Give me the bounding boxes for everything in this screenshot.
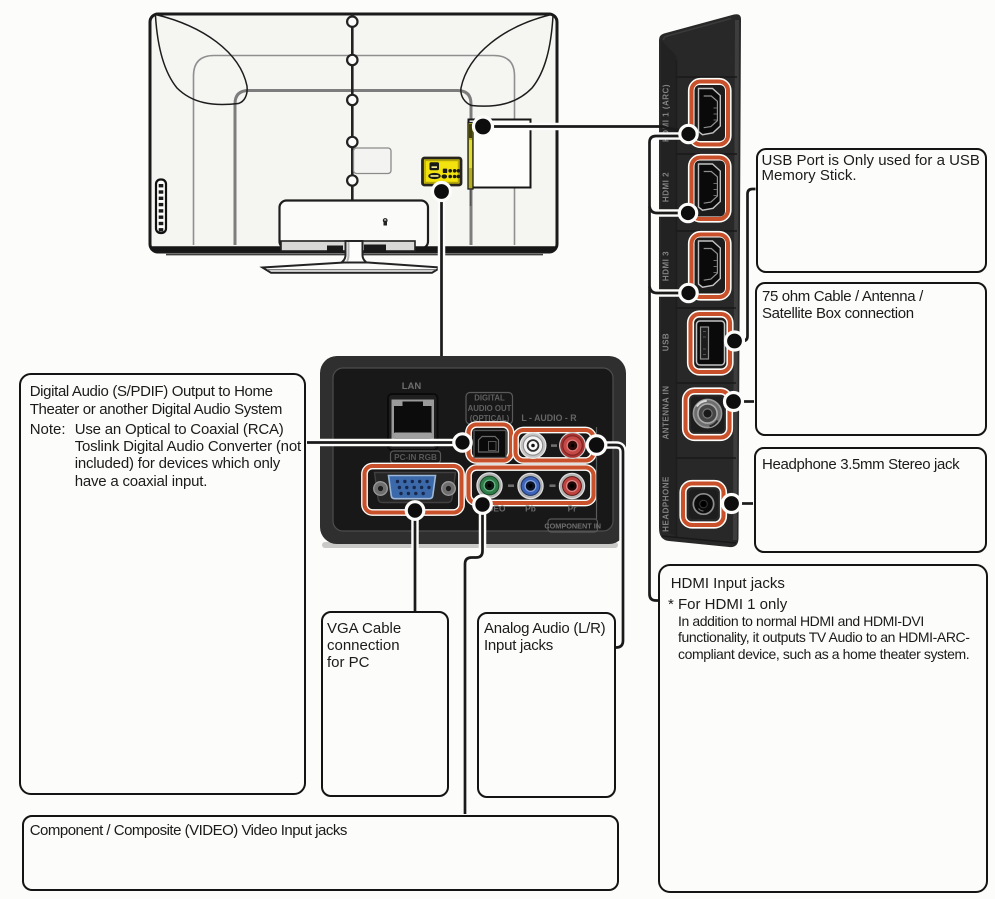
svg-text:LAN: LAN bbox=[402, 381, 422, 392]
svg-text:USB: USB bbox=[662, 333, 671, 351]
svg-text:HDMI 3: HDMI 3 bbox=[662, 251, 671, 281]
svg-text:ANTENNA IN: ANTENNA IN bbox=[662, 385, 671, 439]
svg-text:Pr: Pr bbox=[568, 504, 578, 514]
svg-text:COMPONENT IN: COMPONENT IN bbox=[544, 521, 601, 530]
svg-text:HEADPHONE: HEADPHONE bbox=[662, 476, 671, 532]
svg-text:DIGITAL: DIGITAL bbox=[474, 394, 505, 403]
svg-text:Pb: Pb bbox=[525, 504, 536, 514]
svg-text:PC-IN RGB: PC-IN RGB bbox=[394, 453, 437, 462]
svg-text:L - AUDIO - R: L - AUDIO - R bbox=[521, 413, 577, 423]
svg-text:AUDIO OUT: AUDIO OUT bbox=[468, 404, 512, 413]
svg-text:HDMI 2: HDMI 2 bbox=[662, 172, 671, 202]
